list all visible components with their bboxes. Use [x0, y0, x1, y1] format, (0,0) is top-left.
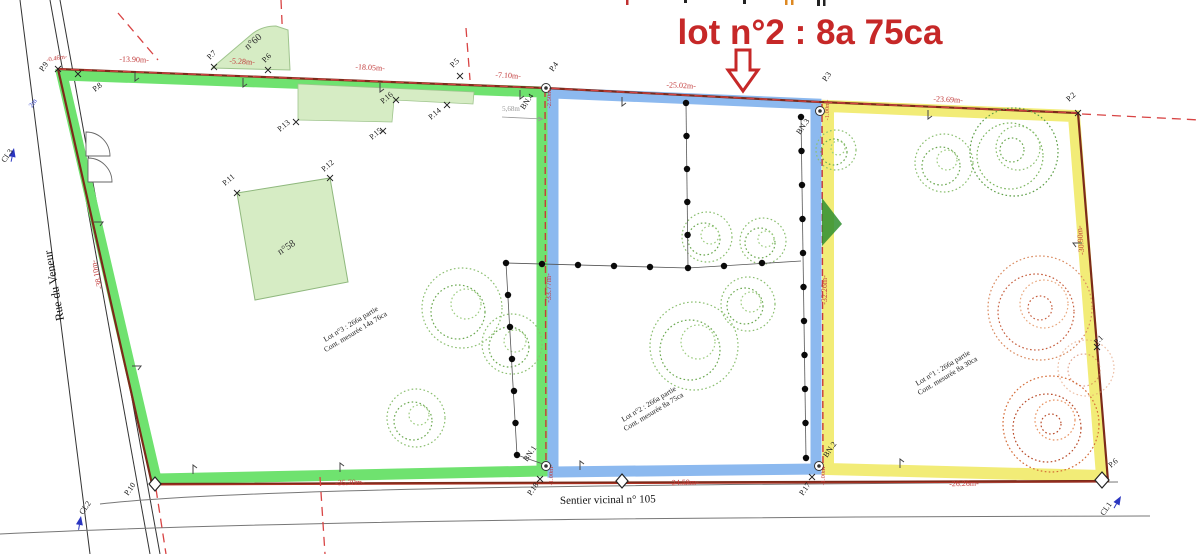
point-label: P.4 [547, 60, 560, 73]
point-label: BN.1 [521, 444, 538, 463]
point-label: P.8 [91, 81, 104, 94]
point-label: CL1 [1098, 500, 1114, 517]
tree-icon [650, 302, 738, 390]
point-label: P.13 [276, 118, 292, 134]
measure-label: -7.10m- [495, 70, 521, 80]
measure-label: -25.02m- [666, 80, 696, 90]
point-crosses [55, 64, 1100, 482]
measure-label: -35.70m- [335, 478, 365, 488]
point-label: P.3 [820, 70, 833, 83]
trees [387, 108, 1114, 472]
measure-label: -24.58m- [669, 478, 699, 488]
measure-label: -1.00m- [824, 100, 831, 121]
measure-label: -2.50m- [546, 88, 553, 109]
measure-label: -18.05m- [355, 62, 385, 73]
point-label: P.5 [448, 56, 461, 69]
lot2-blue-band [553, 93, 816, 472]
measure-label: -0.46m- [46, 53, 68, 63]
measure-label: -5.28m- [229, 56, 255, 66]
point-label: P.11 [221, 172, 237, 187]
lot1-label: Lot n°1 : 266a partie Cont. mesurée 8a 3… [911, 346, 979, 397]
measure-label: -32.26m- [820, 275, 829, 305]
point-label: P.2 [1064, 90, 1077, 103]
measure-ticks [94, 72, 1082, 474]
measure-label: -23.69m- [933, 94, 963, 105]
point-label: P.12 [320, 158, 336, 174]
measure-label: -1.00m- [820, 465, 827, 486]
borne-symbols [542, 84, 825, 471]
street-name-bottom: Sentier vicinal n° 105 [560, 493, 656, 507]
street-name-left: Rue du Veneur [41, 249, 67, 321]
lot3-label: Lot n°3 : 266a partie Cont. mesurée 14a … [318, 301, 390, 354]
measure-label: -26.26m- [949, 479, 979, 489]
path-sentier-vicinal [0, 482, 1150, 534]
cl2-arrow-icon [75, 515, 84, 530]
tree-icon [721, 277, 775, 331]
small-blue-label: 2m [27, 97, 39, 109]
building-n58 [237, 178, 348, 300]
tree-icon [740, 218, 786, 264]
tree-icon [1058, 340, 1114, 396]
clipped-text-fragments [626, 0, 826, 6]
point-label: P.15 [368, 126, 384, 142]
point-label: BN.3 [794, 117, 811, 136]
gate-arcs [86, 132, 112, 182]
tree-icon [988, 256, 1092, 360]
point-label: P.7 [205, 48, 218, 61]
cl1-arrow-icon [1111, 494, 1124, 510]
point-label: P.14 [427, 106, 443, 122]
tree-icon [970, 108, 1058, 196]
point-labels: P.9 P.8 P.7 P.6 P.5 P.4 P.3 P.2 P.1 P.6 … [0, 48, 1120, 517]
point-label: P.6 [1107, 456, 1120, 469]
lot-dividers [545, 90, 823, 470]
point-label: P.10 [122, 481, 137, 497]
measure-label: -13.90m- [119, 54, 149, 64]
lot1-yellow-band [828, 106, 1102, 476]
tree-icon [387, 389, 445, 447]
measure-label: -33.77m- [544, 273, 553, 303]
lot2-label: Lot n°2 : 266a partie Cont. mesurée 8a 7… [617, 382, 685, 433]
edge-measurements: -13.90m- -5.28m- -18.05m- -7.10m- -25.02… [46, 53, 1086, 488]
survey-plan-page: lot n°2 : 8a 75ca -13.90m- -5.28m- -18.0… [0, 0, 1200, 554]
page-title: lot n°2 : 8a 75ca [678, 13, 943, 52]
cadastral-plan-drawing: lot n°2 : 8a 75ca -13.90m- -5.28m- -18.0… [0, 0, 1200, 554]
tree-icon [1003, 376, 1099, 472]
parcel-perimeter [58, 69, 1108, 484]
tree-icon [422, 268, 502, 348]
tree-icon [915, 134, 973, 192]
measure-label: -1.00m- [548, 465, 555, 486]
point-label: CL2 [77, 499, 93, 516]
title-down-arrow-icon [728, 50, 758, 91]
